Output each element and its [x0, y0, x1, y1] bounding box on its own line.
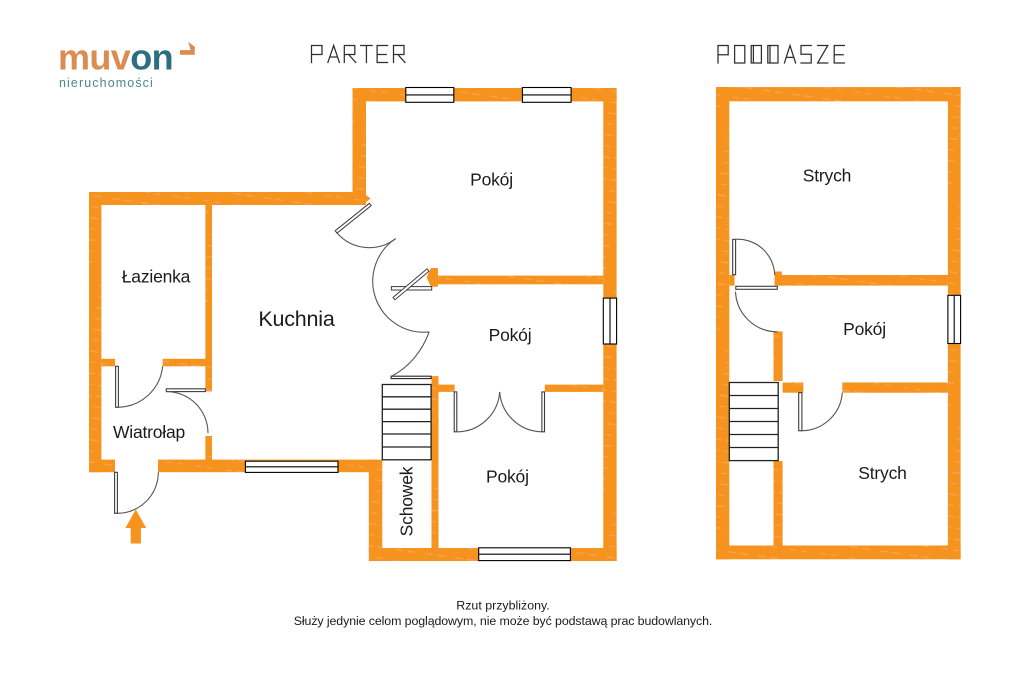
- svg-text:Strych: Strych: [803, 165, 851, 185]
- svg-text:Kuchnia: Kuchnia: [258, 307, 335, 331]
- svg-text:Rzut przybliżony.: Rzut przybliżony.: [456, 599, 549, 613]
- svg-text:Pokój: Pokój: [843, 319, 886, 339]
- svg-text:Strych: Strych: [858, 463, 906, 483]
- svg-text:muvon: muvon: [58, 37, 173, 78]
- svg-text:Łazienka: Łazienka: [122, 266, 191, 286]
- svg-text:Pokój: Pokój: [470, 169, 513, 189]
- svg-text:Schowek: Schowek: [397, 466, 417, 536]
- svg-text:Pokój: Pokój: [489, 325, 532, 345]
- svg-text:nieruchomości: nieruchomości: [59, 76, 154, 90]
- svg-text:Służy jedynie celom poglądowym: Służy jedynie celom poglądowym, nie może…: [294, 614, 713, 628]
- svg-text:Pokój: Pokój: [486, 466, 529, 486]
- svg-text:Wiatrołap: Wiatrołap: [113, 422, 185, 442]
